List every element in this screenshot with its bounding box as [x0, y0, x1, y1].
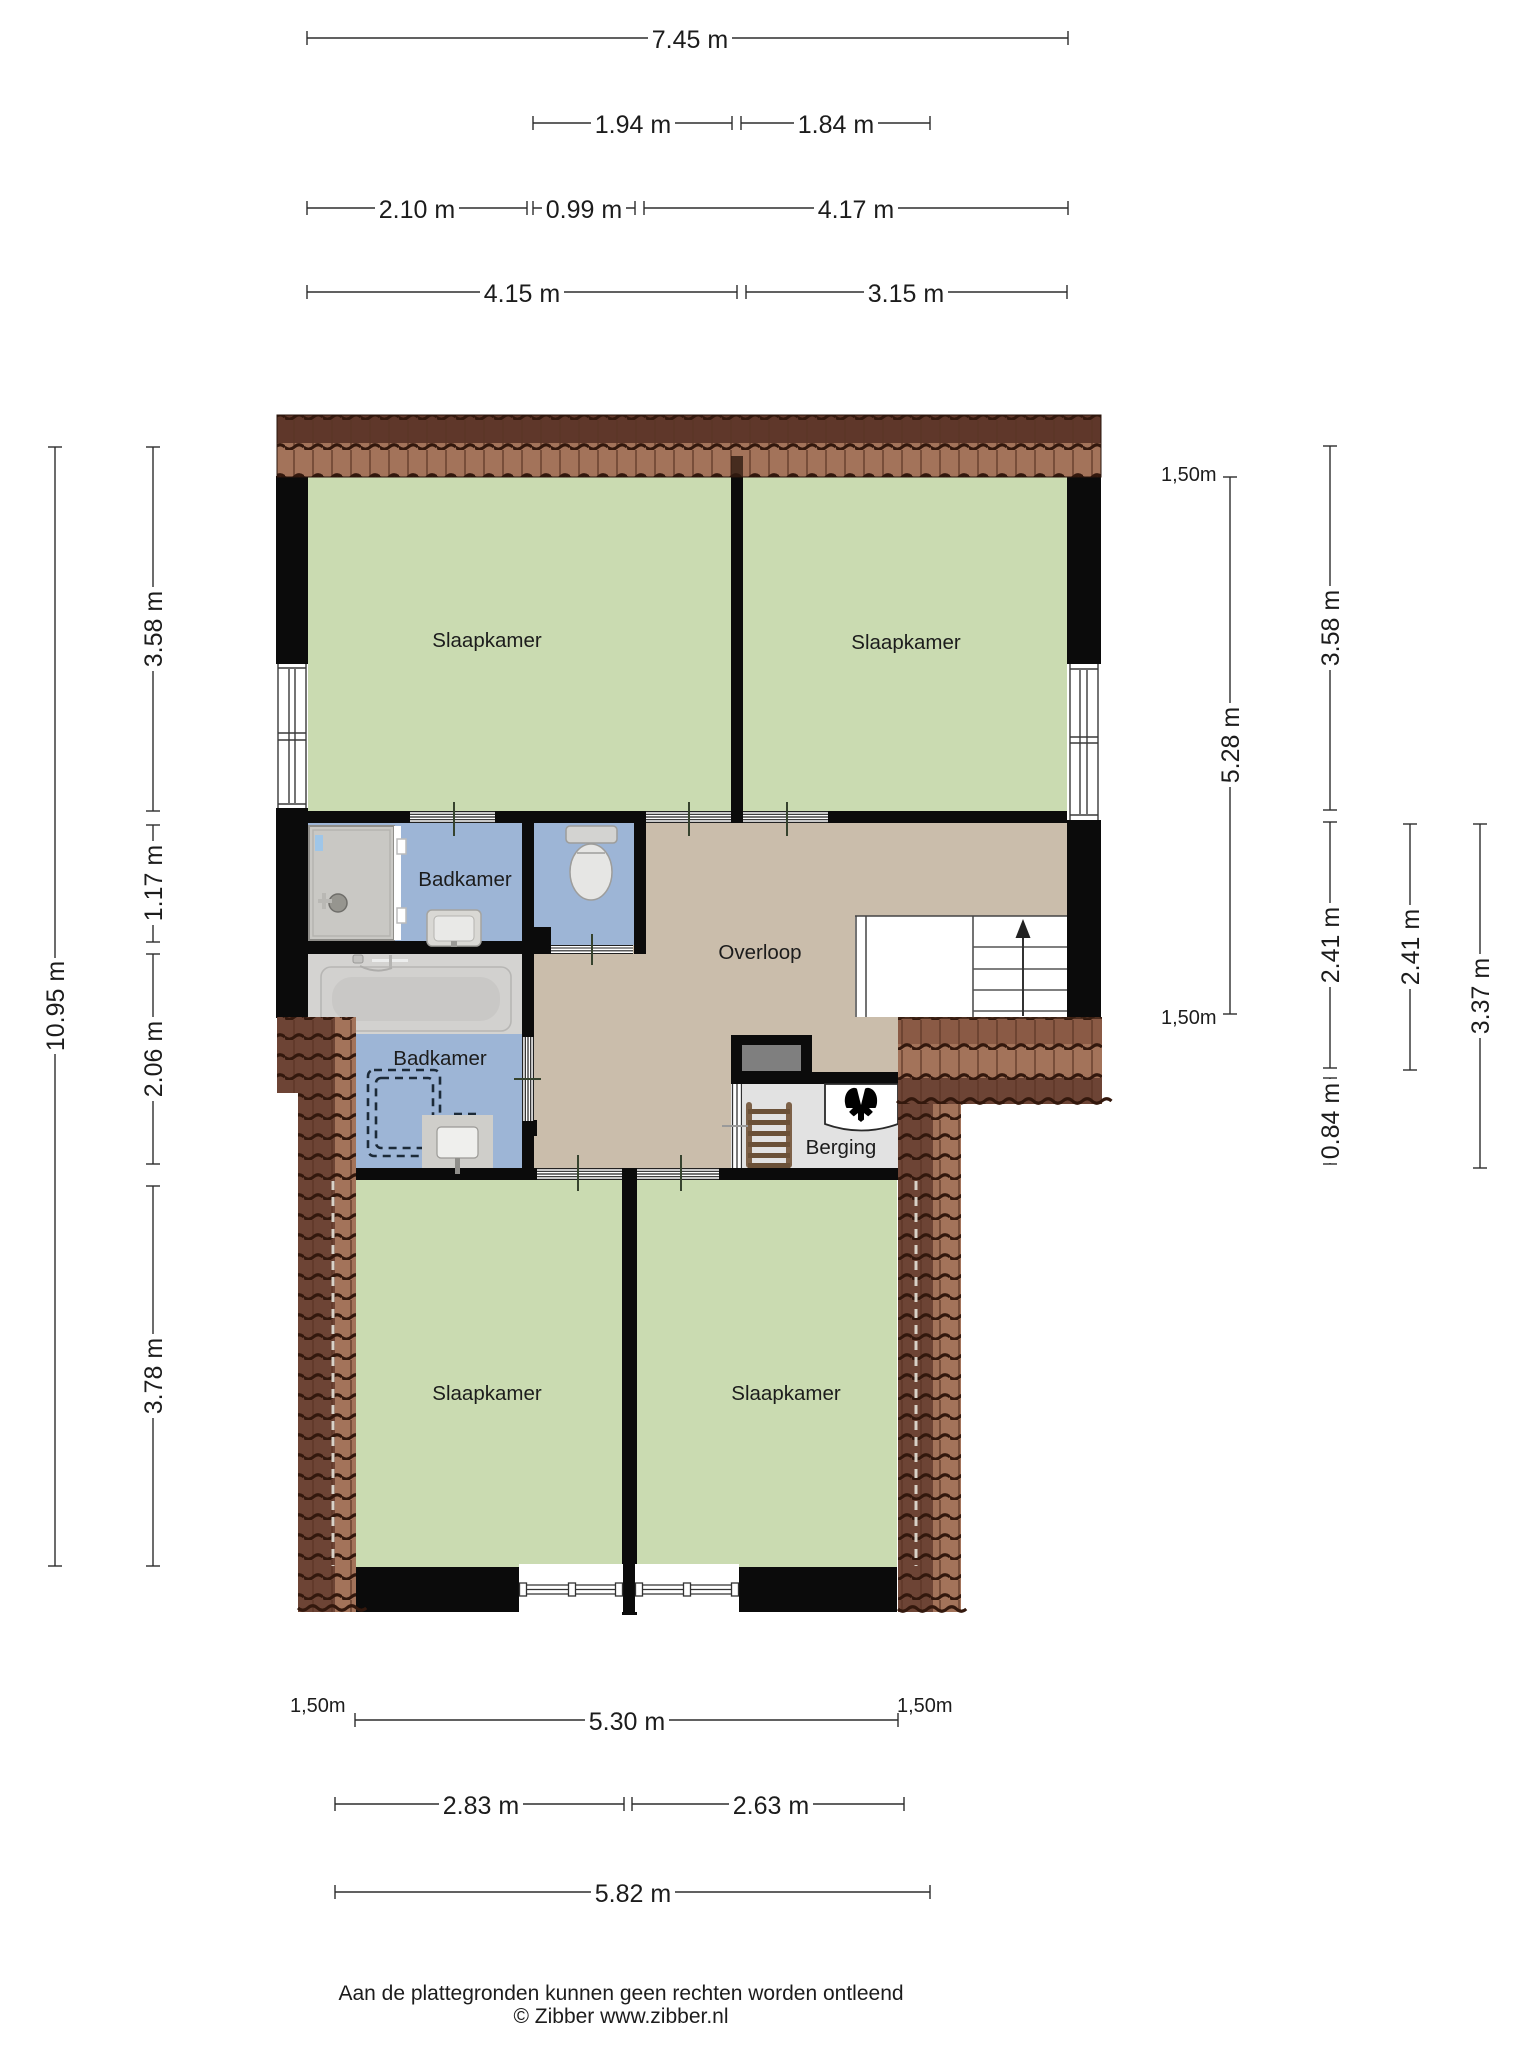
svg-text:© Zibber www.zibber.nl: © Zibber www.zibber.nl — [513, 2005, 728, 2028]
svg-text:Berging: Berging — [806, 1136, 877, 1159]
svg-text:3.58 m: 3.58 m — [1317, 590, 1345, 666]
svg-text:7.45 m: 7.45 m — [652, 26, 728, 54]
svg-text:1.94 m: 1.94 m — [595, 111, 671, 139]
svg-text:2.06 m: 2.06 m — [140, 1021, 168, 1097]
svg-text:Slaapkamer: Slaapkamer — [851, 631, 961, 654]
svg-text:1.17 m: 1.17 m — [140, 845, 168, 921]
svg-text:Slaapkamer: Slaapkamer — [731, 1382, 841, 1405]
svg-text:5.28 m: 5.28 m — [1217, 707, 1245, 783]
svg-text:3.58 m: 3.58 m — [140, 591, 168, 667]
svg-text:1,50m: 1,50m — [1161, 464, 1217, 486]
svg-text:Badkamer: Badkamer — [393, 1047, 487, 1070]
svg-text:Slaapkamer: Slaapkamer — [432, 1382, 542, 1405]
svg-text:0.99 m: 0.99 m — [546, 196, 622, 224]
svg-text:Aan de plattegronden kunnen ge: Aan de plattegronden kunnen geen rechten… — [338, 1982, 903, 2005]
svg-text:0.84 m: 0.84 m — [1317, 1083, 1345, 1159]
svg-text:5.82 m: 5.82 m — [595, 1880, 671, 1908]
svg-text:2.41 m: 2.41 m — [1317, 907, 1345, 983]
svg-text:1,50m: 1,50m — [897, 1695, 953, 1717]
svg-text:5.30 m: 5.30 m — [589, 1708, 665, 1736]
svg-text:10.95 m: 10.95 m — [42, 961, 70, 1051]
svg-text:2.41 m: 2.41 m — [1397, 909, 1425, 985]
svg-text:Slaapkamer: Slaapkamer — [432, 629, 542, 652]
svg-text:4.17 m: 4.17 m — [818, 196, 894, 224]
svg-text:2.10 m: 2.10 m — [379, 196, 455, 224]
svg-text:3.15 m: 3.15 m — [868, 280, 944, 308]
svg-text:2.63 m: 2.63 m — [733, 1792, 809, 1820]
svg-text:3.78 m: 3.78 m — [140, 1338, 168, 1414]
svg-text:1,50m: 1,50m — [290, 1695, 346, 1717]
svg-text:1,50m: 1,50m — [1161, 1007, 1217, 1029]
svg-text:1.84 m: 1.84 m — [798, 111, 874, 139]
svg-text:2.83 m: 2.83 m — [443, 1792, 519, 1820]
svg-text:4.15 m: 4.15 m — [484, 280, 560, 308]
svg-text:Overloop: Overloop — [718, 941, 801, 964]
svg-text:3.37 m: 3.37 m — [1467, 958, 1495, 1034]
svg-text:Badkamer: Badkamer — [418, 868, 512, 891]
